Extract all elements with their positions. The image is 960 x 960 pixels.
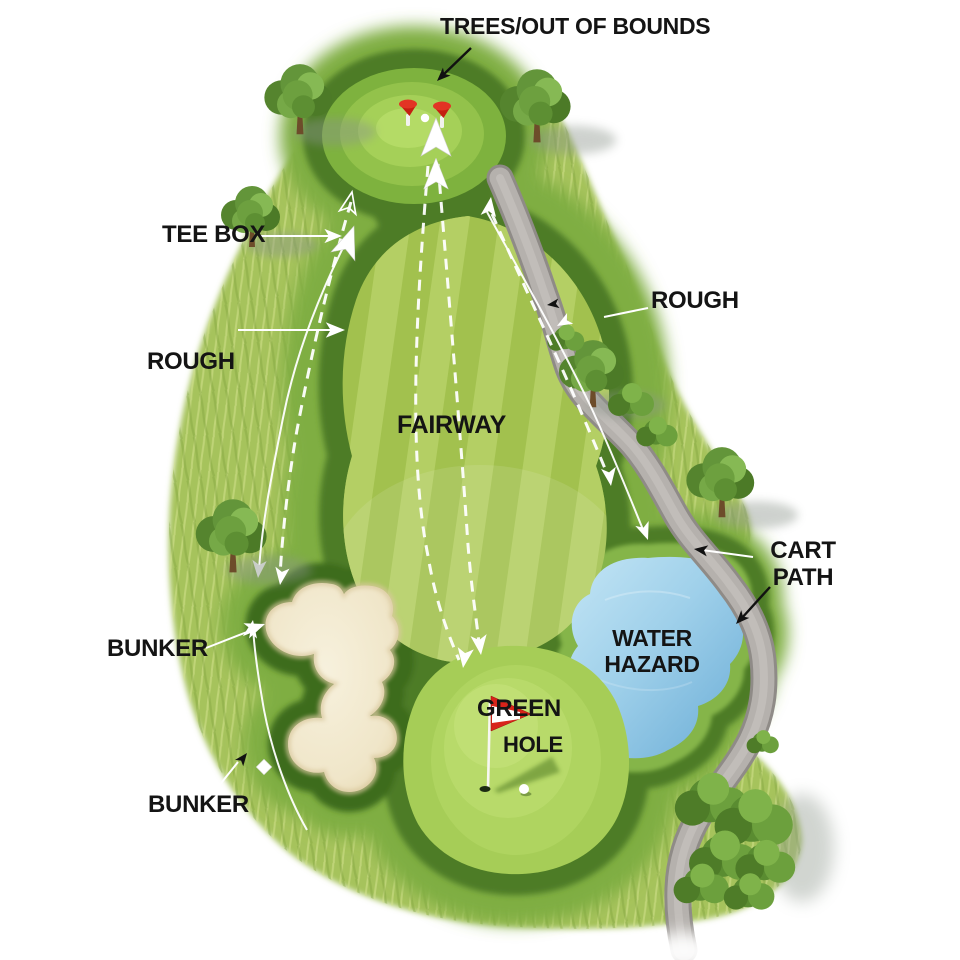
label-water-hazard: WATER HAZARD: [582, 626, 722, 678]
label-trees-out-of-bounds: TREES/OUT OF BOUNDS: [440, 14, 710, 40]
label-bunker-lower: BUNKER: [148, 792, 249, 819]
label-rough-left: ROUGH: [147, 349, 235, 376]
hole-cup-icon: [480, 786, 491, 792]
label-cart-path-line2: PATH: [757, 565, 849, 592]
label-rough-right: ROUGH: [651, 288, 739, 315]
golf-hole-diagram: TREES/OUT OF BOUNDS TEE BOX ROUGH FAIRWA…: [0, 0, 960, 960]
label-cart-path: CART PATH: [757, 538, 849, 592]
label-tee-box: TEE BOX: [162, 222, 265, 249]
label-cart-path-line1: CART: [757, 538, 849, 565]
green-shape: [403, 646, 629, 874]
label-bunker-upper: BUNKER: [107, 636, 208, 663]
label-water-hazard-line2: HAZARD: [582, 652, 722, 678]
label-hole: HOLE: [503, 733, 563, 758]
label-fairway: FAIRWAY: [397, 411, 506, 439]
label-water-hazard-line1: WATER: [582, 626, 722, 652]
golf-ball-icon: [421, 114, 429, 122]
label-green: GREEN: [477, 696, 561, 723]
golf-ball-icon: [519, 784, 529, 794]
course-illustration: [0, 0, 960, 960]
